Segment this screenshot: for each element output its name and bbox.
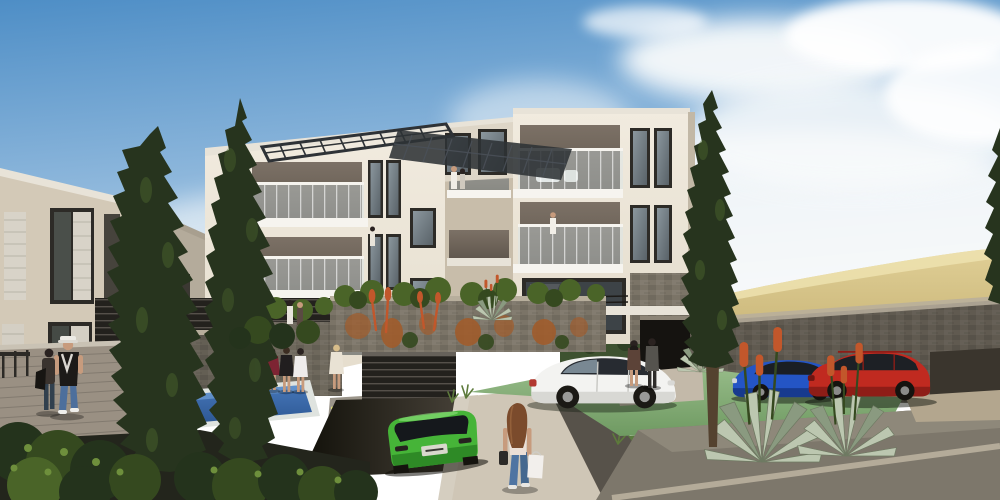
balcony-figure-left-block — [370, 227, 375, 247]
render-canvas — [0, 0, 1000, 500]
balcony-figure-f2 — [550, 212, 556, 234]
scene — [0, 0, 1000, 500]
